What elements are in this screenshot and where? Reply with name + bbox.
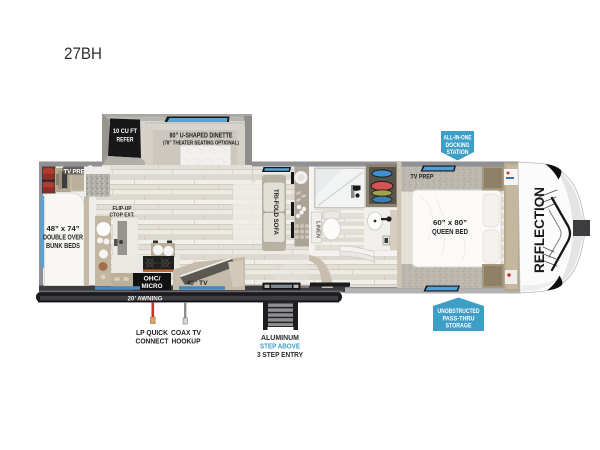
svg-text:REFER: REFER	[117, 137, 134, 144]
svg-text:10 CU FT: 10 CU FT	[113, 128, 137, 135]
svg-text:CONNECT: CONNECT	[136, 337, 170, 346]
svg-text:PASS-THRU: PASS-THRU	[443, 315, 475, 322]
svg-text:CTOP EXT.: CTOP EXT.	[110, 213, 135, 219]
svg-text:BUNK BEDS: BUNK BEDS	[46, 241, 80, 250]
svg-text:TV PREP: TV PREP	[411, 174, 434, 181]
svg-text:ALL-IN-ONE: ALL-IN-ONE	[444, 135, 473, 142]
svg-text:TRI-FOLD SOFA: TRI-FOLD SOFA	[272, 189, 279, 235]
svg-text:OHC/: OHC/	[144, 276, 161, 283]
svg-text:REFLECTION: REFLECTION	[531, 187, 547, 273]
svg-text:80” U-SHAPED DINETTE: 80” U-SHAPED DINETTE	[170, 131, 233, 140]
svg-text:3 STEP ENTRY: 3 STEP ENTRY	[257, 350, 303, 359]
svg-text:HOOKUP: HOOKUP	[172, 337, 201, 346]
svg-text:(78” THEATER SEATING OPTIONAL): (78” THEATER SEATING OPTIONAL)	[163, 141, 239, 147]
svg-text:60” x 80”: 60” x 80”	[433, 218, 467, 227]
svg-text:LINEN: LINEN	[315, 221, 321, 238]
svg-text:40” TV: 40” TV	[187, 280, 208, 287]
svg-text:FLIP-UP: FLIP-UP	[113, 206, 132, 212]
svg-text:MICRO: MICRO	[142, 283, 163, 290]
svg-text:STATION: STATION	[447, 149, 469, 156]
svg-text:QUEEN BED: QUEEN BED	[432, 227, 468, 236]
svg-text:DOCKING: DOCKING	[446, 142, 470, 149]
svg-text:STORAGE: STORAGE	[446, 323, 473, 330]
svg-text:20’ AWNING: 20’ AWNING	[128, 296, 163, 303]
svg-text:UNOBSTRUCTED: UNOBSTRUCTED	[438, 308, 480, 315]
svg-text:27BH: 27BH	[64, 45, 102, 63]
